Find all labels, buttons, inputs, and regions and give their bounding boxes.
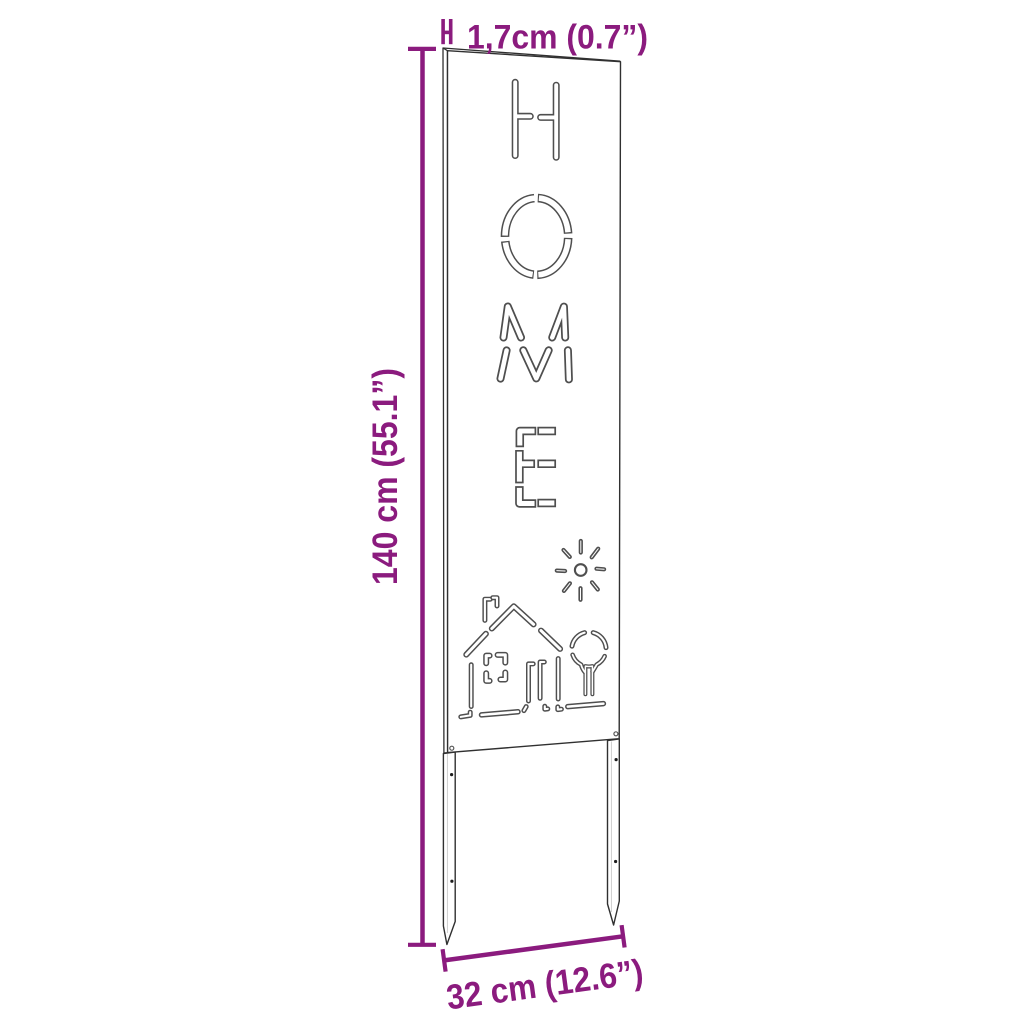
svg-text:140 cm (55.1”): 140 cm (55.1”) (366, 368, 405, 585)
svg-text:1,7cm (0.7”): 1,7cm (0.7”) (467, 18, 648, 56)
